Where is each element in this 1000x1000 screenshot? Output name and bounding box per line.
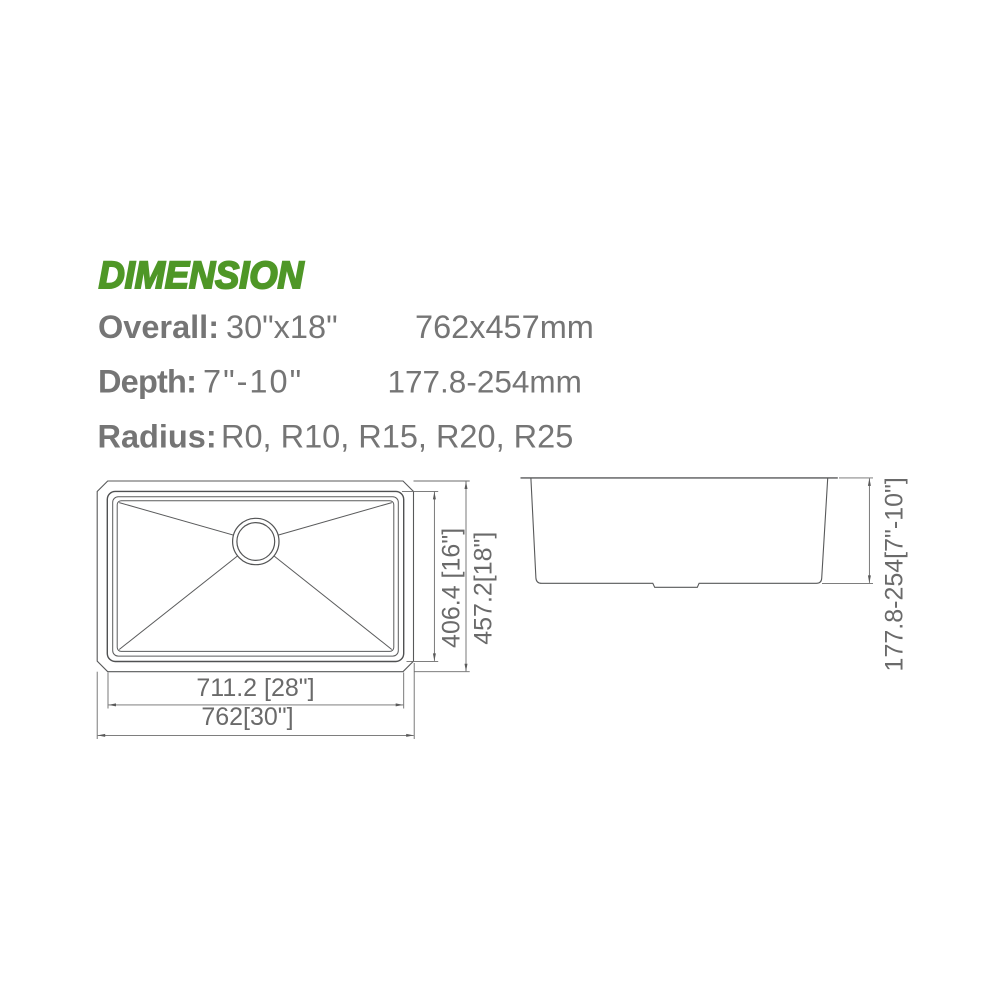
svg-text:7"-10": 7"-10" — [203, 364, 303, 400]
svg-text:177.8-254mm: 177.8-254mm — [388, 364, 582, 400]
svg-text:Overall:: Overall: — [98, 309, 219, 345]
svg-text:762x457mm: 762x457mm — [415, 309, 594, 345]
svg-text:R0, R10, R15, R20, R25: R0, R10, R15, R20, R25 — [221, 418, 573, 454]
svg-text:711.2 [28"]: 711.2 [28"] — [196, 674, 314, 702]
svg-text:Radius:: Radius: — [98, 418, 217, 454]
svg-text:Depth:: Depth: — [98, 364, 196, 400]
svg-text:30"x18": 30"x18" — [226, 309, 338, 345]
svg-text:457.2[18"]: 457.2[18"] — [470, 532, 498, 645]
svg-text:DIMENSION: DIMENSION — [99, 255, 305, 297]
svg-text:762[30"]: 762[30"] — [201, 703, 293, 731]
svg-text:406.4 [16"]: 406.4 [16"] — [438, 528, 466, 648]
svg-text:177.8-254[7"-10"]: 177.8-254[7"-10"] — [881, 477, 909, 671]
